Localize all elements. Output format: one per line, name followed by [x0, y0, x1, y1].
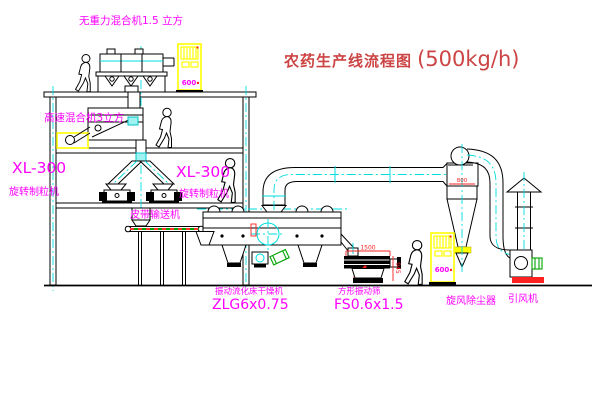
fluid-bed-dryer [196, 206, 354, 268]
label-gravity-mixer: 无重力混合机1.5 立方 [79, 14, 183, 27]
worker-figure-ground [405, 241, 422, 285]
exhaust-duct [262, 164, 452, 211]
label-granulator-right-model: XL-300 [176, 163, 230, 181]
granulator-right [146, 184, 182, 204]
label-cyclone: 旋风除尘器 [446, 294, 496, 307]
flow-diagram-page: 600 [0, 0, 600, 403]
cabinet-upper-text: 600 [182, 79, 197, 87]
label-high-speed-mixer: 高速混合机3立方 [44, 111, 124, 124]
diagram-title-text: 农药生产线流程图 [283, 52, 412, 70]
label-dryer-model: ZLG6x0.75 [212, 297, 289, 313]
control-cabinet-upper: 600 [176, 44, 203, 93]
label-dryer-name: 振动流化床干燥机 [215, 286, 284, 297]
flow-diagram-canvas: 600 [0, 0, 600, 403]
label-belt-conveyor: 皮带输送机 [130, 208, 180, 221]
diagram-title-capacity: (500kg/h) [417, 47, 519, 71]
cabinet-lower-text: 600 [435, 266, 450, 274]
belt-conveyor [125, 226, 204, 285]
worker-figure-second-floor [156, 108, 172, 147]
label-sieve-model: FS0.6x1.5 [334, 297, 404, 313]
label-fan: 引风机 [508, 292, 538, 305]
granulator-left [99, 184, 135, 204]
induced-draft-fan [510, 250, 544, 283]
sieve-height-dimension: 945 [394, 262, 401, 274]
vibrating-sieve: 1500 945 [344, 243, 401, 283]
worker-figure-top-floor [76, 54, 91, 91]
label-granulator-left-name: 旋转制粒机 [9, 185, 59, 198]
label-sieve-name: 方形振动筛 [338, 286, 381, 297]
label-granulator-left-model: XL-300 [12, 159, 66, 177]
cyclone-inlet-dimension: 800 [457, 178, 468, 184]
sieve-length-dimension: 1500 [360, 245, 375, 252]
gravity-free-mixer [96, 49, 174, 92]
control-cabinet-lower: 600 [429, 233, 456, 285]
diagram-title: 农药生产线流程图 (500kg/h) [283, 47, 519, 71]
label-granulator-right-name: 旋转制粒机 [179, 187, 229, 200]
